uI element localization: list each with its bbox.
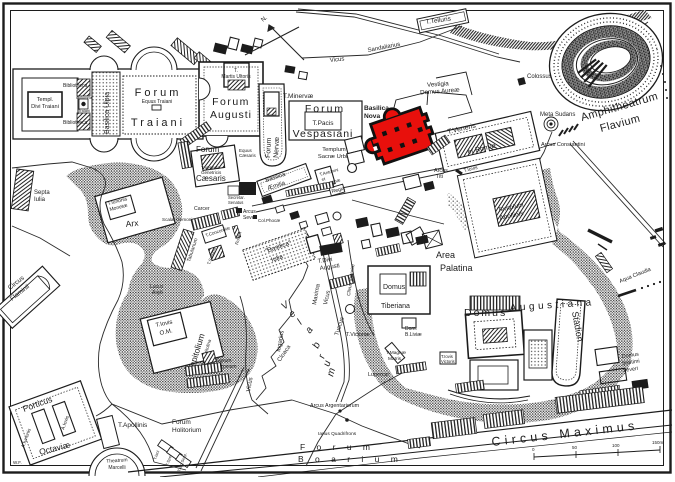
- svg-text:Lupercal: Lupercal: [368, 372, 389, 378]
- svg-text:Marcelli: Marcelli: [108, 465, 125, 471]
- svg-text:Arx: Arx: [125, 218, 139, 229]
- svg-text:Ianus Quadrifrons: Ianus Quadrifrons: [318, 431, 357, 437]
- svg-text:Martis Ultoris: Martis Ultoris: [221, 74, 251, 80]
- svg-text:Templ.: Templ.: [37, 97, 54, 103]
- svg-text:Senatus: Senatus: [228, 200, 243, 205]
- svg-text:Carcer: Carcer: [194, 206, 210, 212]
- svg-text:T.Minervæ: T.Minervæ: [283, 93, 314, 100]
- svg-text:Iulia: Iulia: [34, 197, 46, 203]
- svg-text:Arcus Argentariorum: Arcus Argentariorum: [310, 403, 360, 409]
- svg-text:Curia: Curia: [241, 187, 253, 193]
- svg-text:T.Pacis: T.Pacis: [313, 120, 335, 127]
- svg-text:Cæsaris: Cæsaris: [239, 153, 257, 158]
- svg-text:Nova: Nova: [364, 113, 380, 120]
- svg-text:Basilica Ulpia: Basilica Ulpia: [104, 92, 111, 134]
- svg-text:Vespasiani: Vespasiani: [293, 128, 354, 140]
- svg-text:Basilica: Basilica: [364, 105, 389, 112]
- svg-text:Palatina: Palatina: [440, 263, 473, 273]
- svg-text:B.Liviæ: B.Liviæ: [405, 332, 422, 338]
- svg-text:Forum: Forum: [172, 419, 191, 426]
- svg-text:Tiberiana: Tiberiana: [381, 303, 410, 310]
- svg-text:Titi: Titi: [436, 174, 443, 180]
- svg-text:Meta Sudans: Meta Sudans: [540, 112, 575, 118]
- svg-text:T.Victoriæ: T.Victoriæ: [346, 332, 370, 338]
- svg-text:Forum: Forum: [212, 96, 250, 108]
- svg-text:Divi Traiani: Divi Traiani: [31, 104, 59, 110]
- svg-text:Colossus: Colossus: [527, 74, 552, 80]
- svg-text:W.F.: W.F.: [13, 460, 22, 465]
- svg-text:Septa: Septa: [34, 190, 50, 196]
- svg-text:Col.Phocæ: Col.Phocæ: [258, 218, 280, 223]
- svg-text:Arcus Constantini: Arcus Constantini: [541, 142, 585, 148]
- svg-text:T.Apollinis: T.Apollinis: [118, 422, 148, 429]
- svg-text:Victoris: Victoris: [441, 359, 455, 364]
- svg-text:Domus: Domus: [383, 284, 406, 291]
- svg-text:Templum: Templum: [322, 147, 346, 153]
- svg-text:Columna: Columna: [76, 95, 93, 100]
- svg-text:Holitorium: Holitorium: [172, 427, 201, 434]
- svg-text:F o r u m: F o r u m: [300, 442, 375, 452]
- svg-text:Traiani: Traiani: [131, 117, 185, 129]
- svg-text:Sacræ Urbis: Sacræ Urbis: [318, 154, 350, 160]
- svg-text:Bibliotheca: Bibliotheca: [63, 83, 88, 89]
- svg-text:T.Magnæ: T.Magnæ: [386, 350, 407, 356]
- svg-text:100: 100: [612, 443, 620, 448]
- svg-text:Forum: Forum: [265, 137, 273, 158]
- svg-text:Asyli: Asyli: [152, 290, 163, 296]
- svg-text:Equus Traiani: Equus Traiani: [142, 99, 173, 105]
- svg-text:Forum: Forum: [135, 87, 182, 99]
- svg-text:Forum: Forum: [196, 145, 219, 154]
- svg-text:Cæsaris: Cæsaris: [196, 174, 226, 183]
- svg-text:Augusti: Augusti: [210, 109, 252, 121]
- svg-text:Matris: Matris: [388, 356, 402, 362]
- svg-text:Area: Area: [436, 250, 455, 260]
- svg-text:Nervæ: Nervæ: [273, 137, 281, 158]
- svg-text:B o a r i u m: B o a r i u m: [298, 454, 402, 464]
- svg-text:Domus: Domus: [464, 307, 507, 319]
- svg-text:150m: 150m: [652, 440, 664, 445]
- svg-text:Traiani: Traiani: [78, 108, 90, 113]
- svg-text:50: 50: [572, 445, 578, 450]
- svg-text:Genetricis: Genetricis: [201, 170, 222, 175]
- svg-text:Forum: Forum: [305, 103, 345, 115]
- svg-text:Bibliotheca: Bibliotheca: [63, 120, 88, 126]
